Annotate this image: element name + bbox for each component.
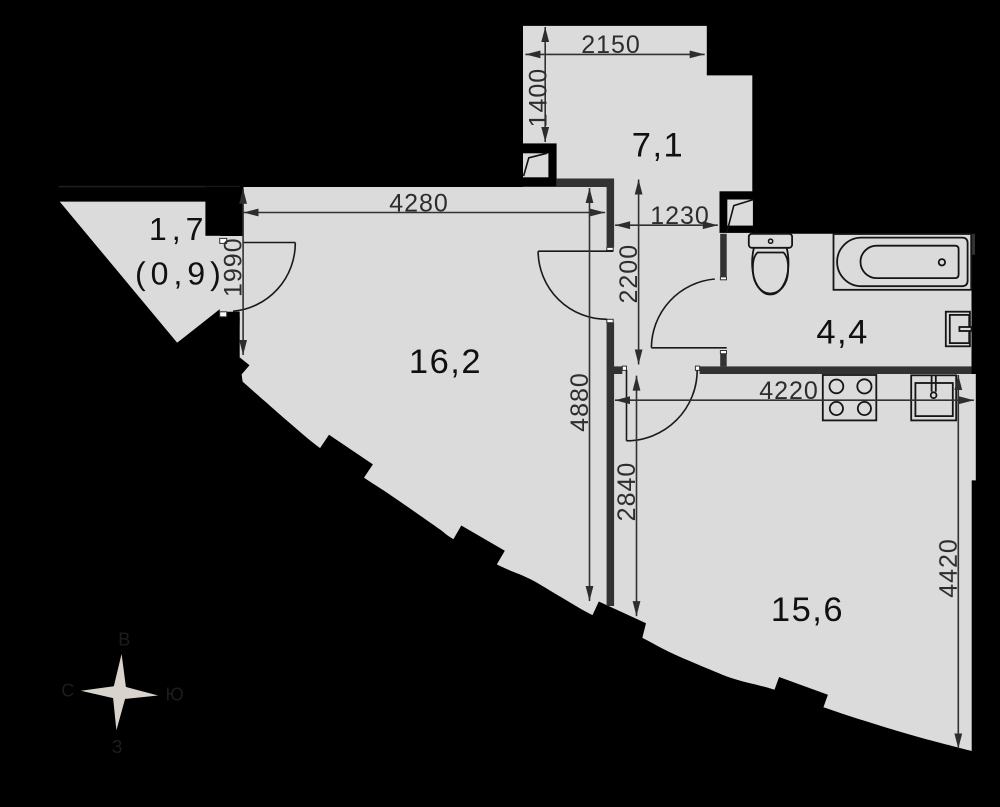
svg-text:1400: 1400 (524, 68, 552, 128)
svg-text:1990: 1990 (220, 237, 248, 297)
svg-text:З: З (112, 737, 123, 757)
svg-text:4420: 4420 (935, 538, 963, 598)
svg-text:4,4: 4,4 (816, 314, 868, 352)
svg-text:2150: 2150 (581, 31, 641, 59)
svg-text:В: В (118, 630, 130, 650)
svg-text:4880: 4880 (566, 372, 594, 432)
svg-text:4220: 4220 (759, 377, 819, 405)
svg-text:7,1: 7,1 (632, 127, 684, 165)
svg-text:15,6: 15,6 (771, 591, 844, 629)
svg-text:С: С (61, 681, 74, 701)
svg-text:2200: 2200 (615, 244, 643, 304)
svg-text:Ю: Ю (166, 685, 184, 705)
svg-text:2840: 2840 (613, 462, 641, 522)
svg-text:4280: 4280 (389, 189, 449, 217)
svg-text:1230: 1230 (650, 202, 710, 230)
svg-text:16,2: 16,2 (409, 343, 482, 381)
